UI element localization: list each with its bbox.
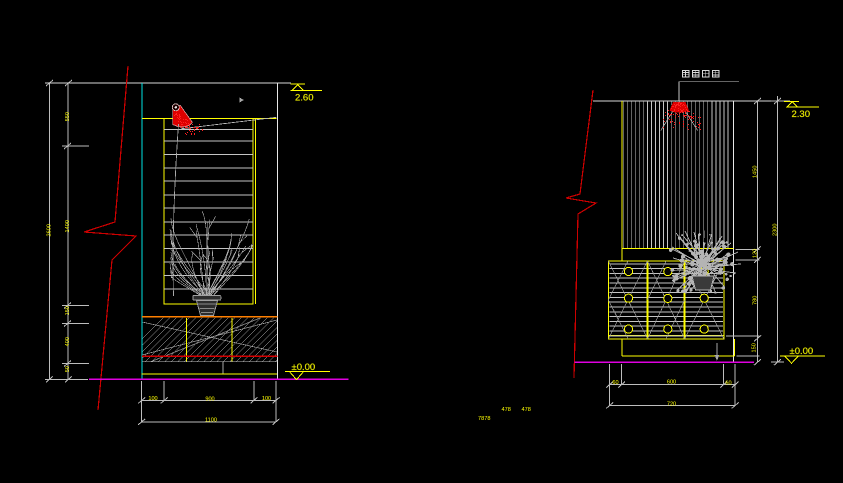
- svg-text:50: 50: [65, 366, 71, 372]
- svg-text:720: 720: [667, 402, 676, 408]
- svg-text:100: 100: [262, 396, 271, 402]
- svg-text:2.30: 2.30: [792, 109, 811, 120]
- svg-text:2300: 2300: [773, 224, 779, 236]
- svg-text:1100: 1100: [205, 418, 217, 424]
- svg-text:478: 478: [522, 407, 531, 413]
- svg-text:7878: 7878: [478, 416, 490, 422]
- svg-text:550: 550: [65, 112, 71, 121]
- svg-text:100: 100: [148, 396, 157, 402]
- svg-text:120: 120: [753, 249, 759, 258]
- svg-text:2.60: 2.60: [295, 93, 314, 104]
- svg-text:780: 780: [753, 296, 759, 305]
- svg-text:600: 600: [667, 380, 676, 386]
- svg-text:1400: 1400: [65, 220, 71, 232]
- svg-text:150: 150: [65, 306, 71, 315]
- svg-text:400: 400: [65, 337, 71, 346]
- svg-text:1450: 1450: [753, 166, 759, 178]
- svg-text:478: 478: [502, 407, 511, 413]
- svg-text:60: 60: [725, 381, 731, 387]
- svg-text:900: 900: [205, 397, 214, 403]
- svg-text:150: 150: [752, 343, 758, 352]
- svg-text:2600: 2600: [47, 224, 53, 236]
- svg-text:60: 60: [612, 380, 618, 386]
